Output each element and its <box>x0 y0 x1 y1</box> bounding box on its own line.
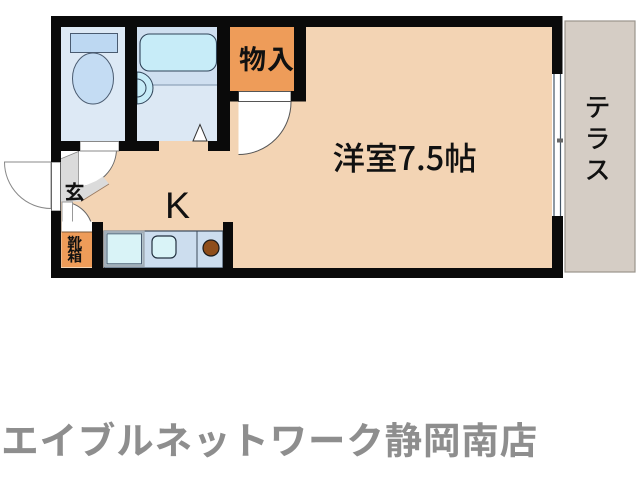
svg-text:K: K <box>165 184 190 226</box>
